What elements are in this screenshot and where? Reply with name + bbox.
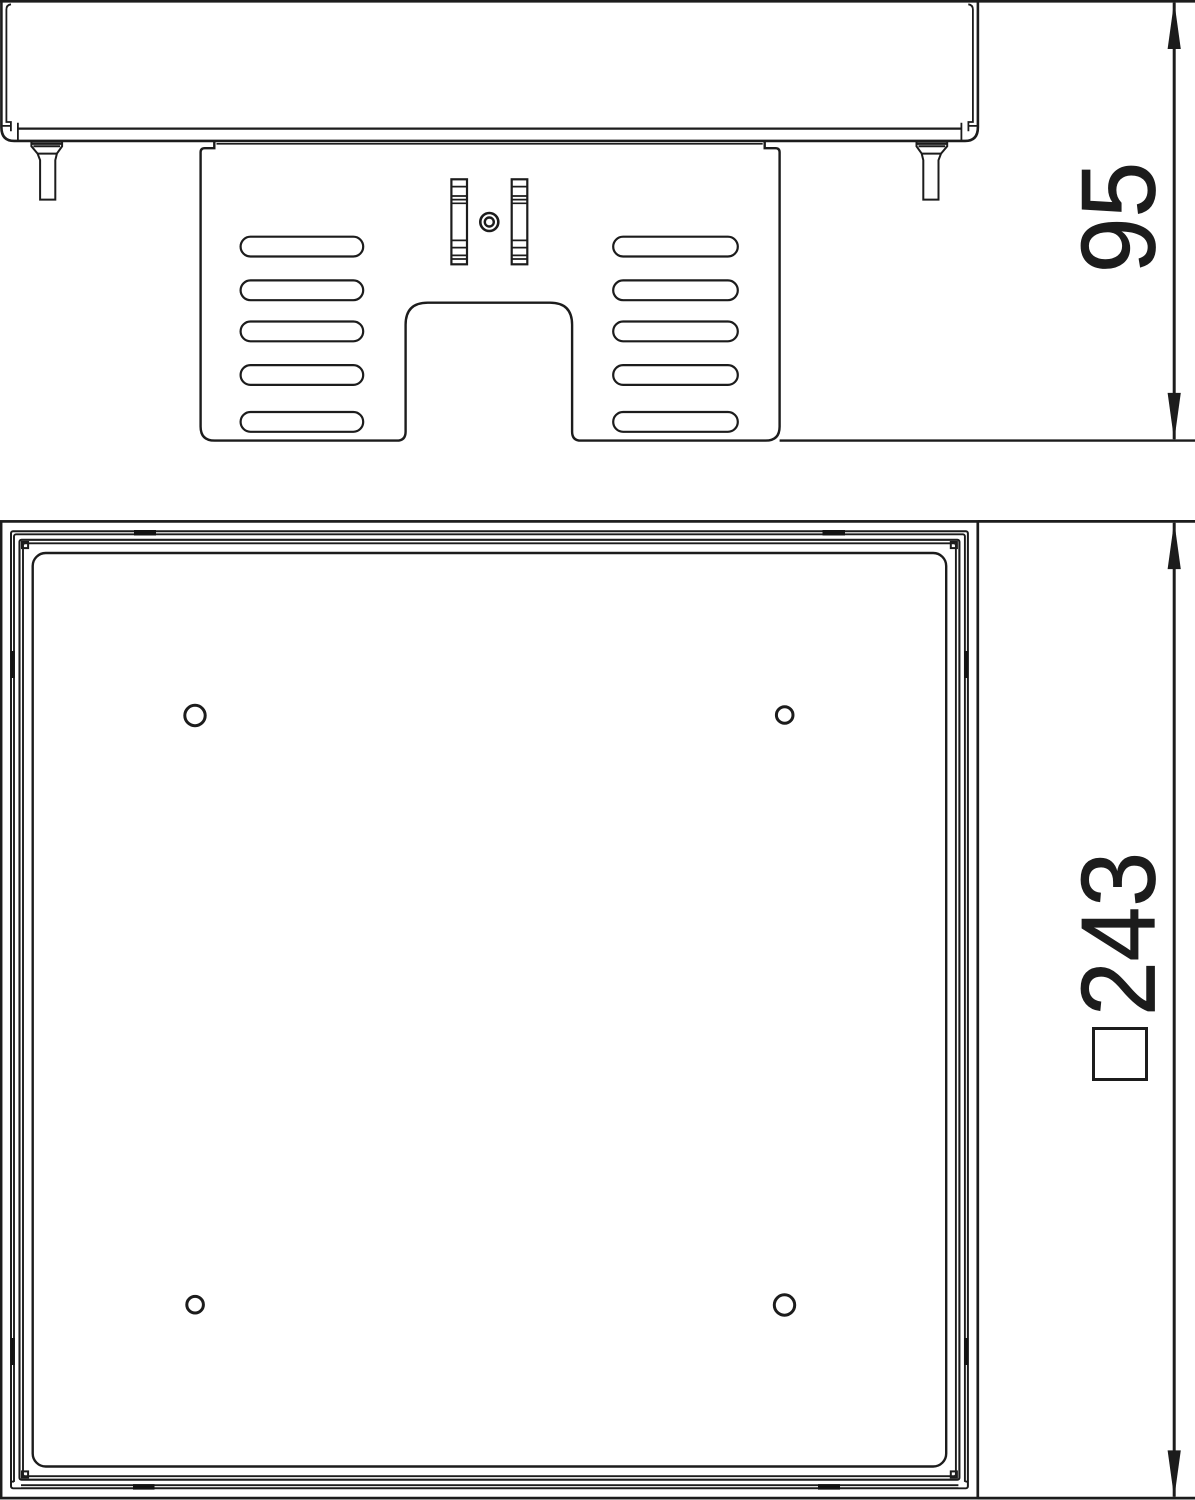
svg-text:95: 95 [1060, 162, 1177, 274]
svg-text:243: 243 [1060, 852, 1177, 1016]
